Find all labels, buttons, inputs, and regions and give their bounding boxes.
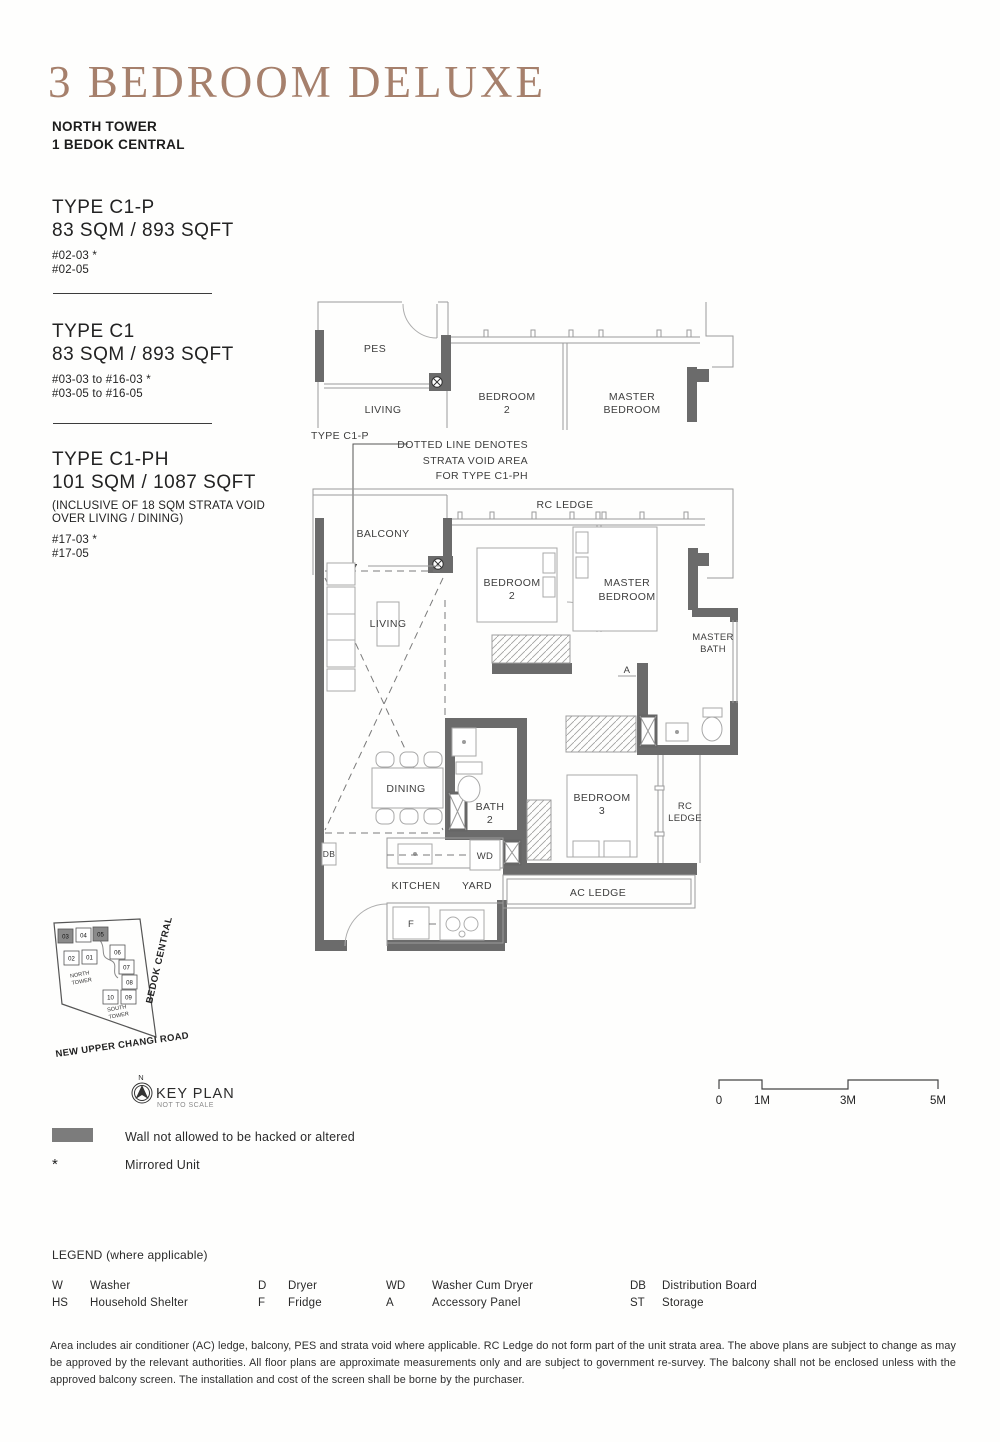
svg-text:BEDROOM: BEDROOM: [598, 591, 655, 603]
divider-line: [53, 293, 212, 294]
label-master-bedroom: MASTER: [604, 577, 650, 589]
svg-text:1M: 1M: [754, 1095, 770, 1107]
svg-text:2: 2: [509, 590, 515, 602]
svg-text:LEDGE: LEDGE: [668, 813, 702, 824]
label-ac-ledge: AC LEDGE: [570, 887, 626, 899]
label-wd: WD: [477, 851, 493, 862]
room-label-master-bedroom: MASTER: [609, 391, 655, 403]
label-kitchen: KITCHEN: [392, 880, 441, 892]
unit-type-name: TYPE C1: [52, 320, 234, 343]
north-compass-icon: N: [132, 1073, 152, 1103]
unit-type-note: (INCLUSIVE OF 18 SQM STRATA VOID OVER LI…: [52, 500, 265, 526]
room-label-bedroom2: BEDROOM: [478, 391, 535, 403]
key-plan-title: KEY PLAN: [156, 1086, 235, 1102]
svg-text:3M: 3M: [840, 1095, 856, 1107]
tower-block: NORTH TOWER 1 BEDOK CENTRAL: [52, 118, 185, 154]
plan-type-label: TYPE C1-P: [311, 430, 369, 442]
unit-number: #02-03 *: [52, 250, 234, 264]
legend-key: HS: [52, 1297, 68, 1309]
road-label-new-upper-changi: NEW UPPER CHANGI ROAD: [55, 1030, 190, 1060]
legend-label: Household Shelter: [90, 1297, 188, 1309]
bedroom2-furniture: [477, 548, 570, 663]
entrance-door-arc: [345, 904, 387, 946]
legend-label: Distribution Board: [662, 1280, 757, 1292]
label-bath2: BATH: [476, 801, 505, 813]
legend-label: Fridge: [288, 1297, 322, 1309]
svg-text:04: 04: [80, 934, 87, 940]
label-accessory-panel: A: [624, 665, 631, 676]
svg-text:BEDROOM: BEDROOM: [603, 404, 660, 416]
legend-label: Accessory Panel: [432, 1297, 521, 1309]
key-plan: 03 04 05 02 01 06 07 08 09 10 NORTH TOWE…: [40, 915, 270, 1115]
tower-address: 1 BEDOK CENTRAL: [52, 136, 185, 154]
label-bedroom2: BEDROOM: [483, 577, 540, 589]
tower-name: NORTH TOWER: [52, 118, 185, 136]
master-bath-fixtures: [666, 708, 722, 741]
wall-legend-label: Wall not allowed to be hacked or altered: [125, 1130, 355, 1144]
legend-key: DB: [630, 1280, 646, 1292]
unit-type-c1: TYPE C1 83 SQM / 893 SQFT #03-03 to #16-…: [52, 320, 234, 401]
key-plan-subtitle: NOT TO SCALE: [157, 1102, 214, 1109]
bath2-fixtures: [452, 728, 482, 802]
unit-number: #03-05 to #16-05: [52, 388, 234, 402]
svg-text:0: 0: [716, 1095, 722, 1107]
mirror-legend-label: Mirrored Unit: [125, 1158, 200, 1172]
legend-key: ST: [630, 1297, 645, 1309]
unit-type-name: TYPE C1-PH: [52, 448, 265, 471]
svg-text:DOTTED LINE DENOTES: DOTTED LINE DENOTES: [397, 439, 528, 451]
svg-text:09: 09: [125, 996, 132, 1002]
svg-text:07: 07: [123, 966, 130, 972]
svg-text:STRATA VOID AREA: STRATA VOID AREA: [423, 455, 528, 467]
label-yard: YARD: [462, 880, 492, 892]
room-label-pes: PES: [364, 343, 386, 355]
legend-key: D: [258, 1280, 266, 1292]
mirror-symbol: *: [52, 1156, 58, 1173]
svg-text:3: 3: [599, 805, 605, 817]
unit-type-units: #17-03 * #17-05: [52, 534, 265, 561]
svg-text:N: N: [138, 1073, 143, 1082]
label-rc-ledge-top: RC LEDGE: [537, 499, 594, 511]
unit-number: #17-03 *: [52, 534, 265, 548]
legend-key: W: [52, 1280, 63, 1292]
unit-type-c1p: TYPE C1-P 83 SQM / 893 SQFT #02-03 * #02…: [52, 196, 234, 277]
label-rc-ledge-right: RC: [678, 801, 692, 812]
legend-label: Dryer: [288, 1280, 317, 1292]
legend-key: F: [258, 1297, 265, 1309]
svg-text:01: 01: [86, 956, 93, 962]
label-bedroom3: BEDROOM: [573, 792, 630, 804]
label-fridge: F: [408, 919, 414, 930]
svg-text:2: 2: [504, 404, 510, 416]
unit-type-area: 83 SQM / 893 SQFT: [52, 219, 234, 242]
svg-text:5M: 5M: [930, 1095, 946, 1107]
disclaimer-text: Area includes air conditioner (AC) ledge…: [50, 1338, 956, 1389]
wall-left: [315, 518, 324, 946]
unit-number: #17-05: [52, 548, 265, 562]
divider-line: [53, 423, 212, 424]
wall-legend-swatch: [52, 1128, 93, 1142]
road-label-bedok-central: BEDOK CENTRAL: [144, 916, 175, 1005]
svg-text:08: 08: [126, 981, 133, 987]
legend-label: Washer Cum Dryer: [432, 1280, 533, 1292]
unit-type-name: TYPE C1-P: [52, 196, 234, 219]
room-label-living: LIVING: [365, 404, 402, 416]
svg-text:BATH: BATH: [700, 644, 726, 655]
plan-type-c1p: PES LIVING BEDROOM 2 MASTER BEDROOM TYPE…: [311, 302, 733, 442]
svg-text:05: 05: [97, 933, 104, 939]
label-living: LIVING: [370, 618, 407, 630]
unit-type-units: #03-03 to #16-03 * #03-05 to #16-05: [52, 374, 234, 401]
label-master-bath: MASTER: [692, 632, 733, 643]
svg-text:02: 02: [68, 957, 75, 963]
unit-number: #03-03 to #16-03 *: [52, 374, 234, 388]
label-db: DB: [323, 849, 335, 859]
legend-label: Washer: [90, 1280, 130, 1292]
scale-bar: 0 1M 3M 5M: [700, 1065, 950, 1110]
svg-text:06: 06: [114, 951, 121, 957]
bedroom3-furniture: [527, 775, 637, 860]
label-balcony: BALCONY: [357, 528, 410, 540]
floorplan-page: 3 BEDROOM DELUXE NORTH TOWER 1 BEDOK CEN…: [0, 0, 1000, 1442]
unit-type-units: #02-03 * #02-05: [52, 250, 234, 277]
svg-text:10: 10: [107, 996, 114, 1002]
tower-blocks: 03 04 05 02 01 06 07 08 09 10: [58, 927, 137, 1004]
svg-text:FOR TYPE C1-PH: FOR TYPE C1-PH: [436, 470, 528, 482]
legend-title: LEGEND (where applicable): [52, 1248, 208, 1262]
legend-key: A: [386, 1297, 394, 1309]
label-dining: DINING: [386, 783, 425, 795]
plan-main: RC LEDGE BALCONY LIVING BEDROOM 2 MASTER…: [313, 489, 738, 951]
tower-names: NORTH TOWER SOUTH TOWER: [70, 970, 130, 1020]
legend-label: Storage: [662, 1297, 704, 1309]
page-title: 3 BEDROOM DELUXE: [48, 56, 546, 108]
unit-type-area: 101 SQM / 1087 SQFT: [52, 471, 265, 494]
floor-plan-drawing: PES LIVING BEDROOM 2 MASTER BEDROOM TYPE…: [310, 295, 740, 965]
unit-number: #02-05: [52, 264, 234, 278]
unit-type-area: 83 SQM / 893 SQFT: [52, 343, 234, 366]
svg-text:2: 2: [487, 814, 493, 826]
unit-type-c1ph: TYPE C1-PH 101 SQM / 1087 SQFT (INCLUSIV…: [52, 448, 265, 561]
svg-text:03: 03: [62, 935, 69, 941]
legend-key: WD: [386, 1280, 405, 1292]
